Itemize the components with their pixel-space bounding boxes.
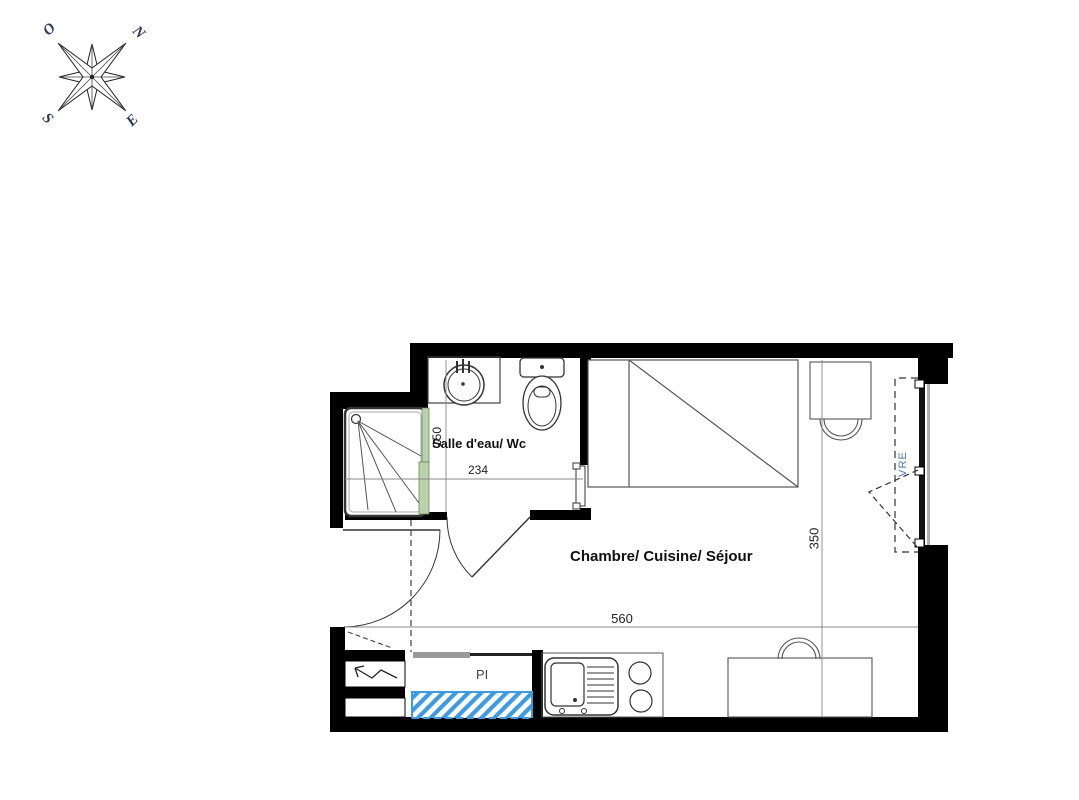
floor-plan-drawing bbox=[0, 0, 1079, 800]
panel-bar-top bbox=[345, 650, 405, 661]
bottom-wall bbox=[330, 717, 948, 732]
main-room-label: Chambre/ Cuisine/ Séjour bbox=[570, 548, 753, 565]
compass-rose bbox=[58, 43, 126, 111]
bed bbox=[588, 360, 798, 487]
window-opening-direction bbox=[869, 470, 918, 548]
dim-350-label: 350 bbox=[807, 519, 822, 559]
bathroom-bottom-wall-right bbox=[530, 510, 591, 520]
window-outer-line bbox=[927, 384, 930, 545]
dim-560-label: 560 bbox=[602, 611, 642, 626]
washbasin bbox=[428, 357, 500, 405]
window-label: VRE bbox=[897, 442, 909, 486]
window-glazing bbox=[919, 384, 925, 545]
panel-bar-mid bbox=[345, 687, 405, 698]
shower bbox=[345, 408, 425, 516]
entry-door bbox=[343, 530, 440, 627]
floor-plan-canvas: O N S E Salle d'eau/ Wc Chambre/ Cuisine… bbox=[0, 0, 1079, 800]
toilet bbox=[520, 358, 564, 430]
right-wall-top-pier bbox=[918, 343, 948, 384]
closet-zone bbox=[412, 652, 532, 718]
desk-chair bbox=[820, 419, 862, 440]
top-wall bbox=[410, 343, 953, 358]
desk bbox=[810, 362, 871, 440]
kitchen-counter bbox=[542, 653, 663, 717]
bathroom-top-left-pier bbox=[410, 343, 428, 409]
towel-radiator bbox=[573, 463, 585, 509]
bathroom-door bbox=[447, 517, 530, 577]
dining-chair bbox=[778, 638, 820, 659]
kitchen-partition bbox=[532, 650, 543, 717]
layout-dashed-lines bbox=[348, 520, 411, 652]
bathroom-left-band bbox=[343, 392, 410, 409]
closet-rail bbox=[413, 652, 470, 658]
cooktop bbox=[629, 662, 652, 712]
left-wall-upper bbox=[330, 392, 343, 528]
closet-label: PI bbox=[476, 667, 488, 682]
dim-234-label: 234 bbox=[458, 463, 498, 477]
niche-box bbox=[345, 698, 405, 717]
bathroom-label: Salle d'eau/ Wc bbox=[432, 436, 526, 451]
left-wall-lower bbox=[330, 627, 345, 732]
technical-duct bbox=[412, 692, 532, 718]
dim-150-label: 150 bbox=[430, 417, 444, 457]
dining-table bbox=[728, 638, 872, 717]
right-wall-lower bbox=[918, 545, 948, 732]
